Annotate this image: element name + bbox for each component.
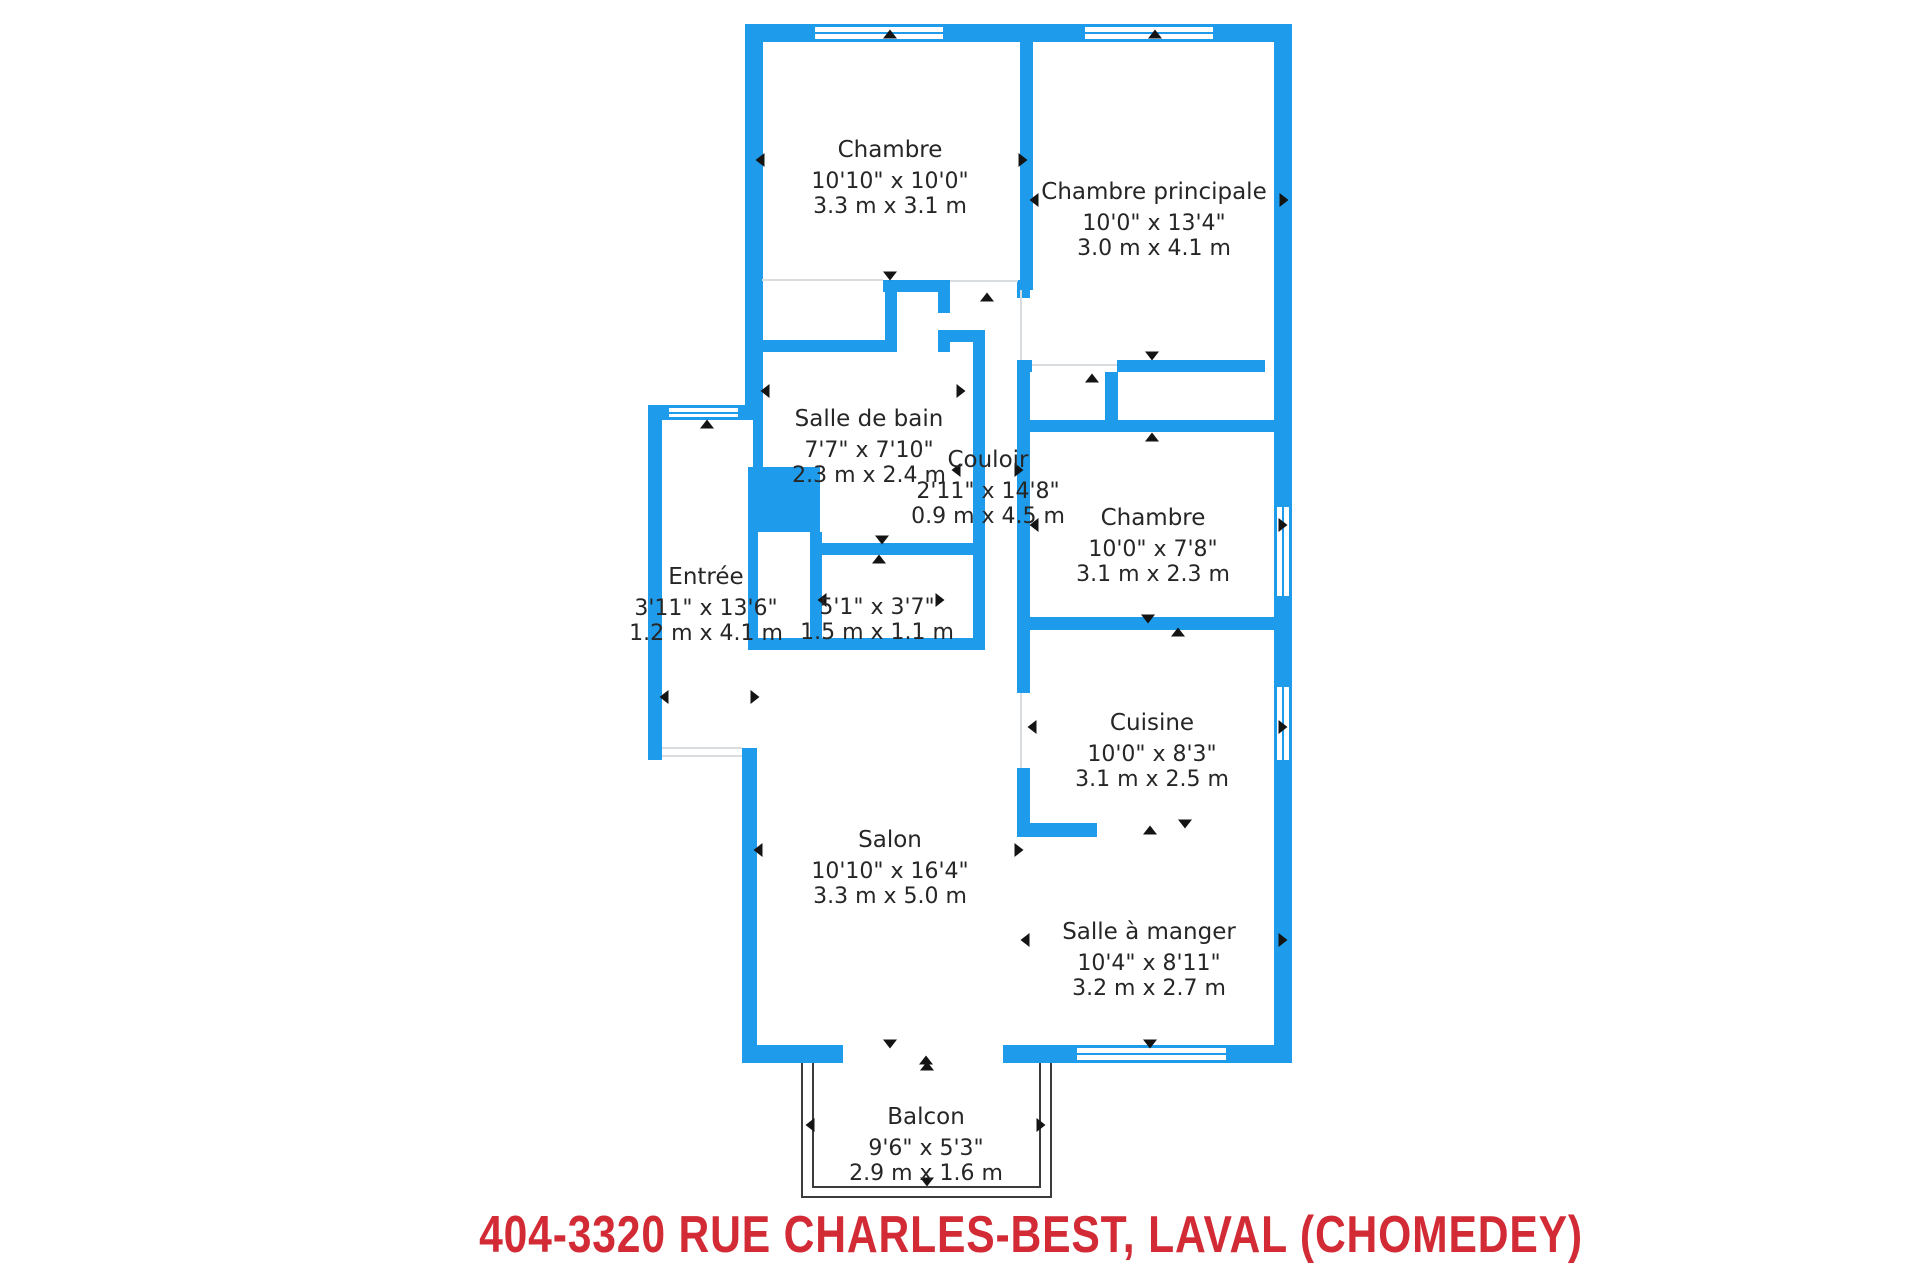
room-name: Chambre principale xyxy=(1041,179,1266,206)
arrow-marker-icon xyxy=(1085,374,1099,383)
room-imperial-dimensions: 9'6" x 5'3" xyxy=(849,1136,1003,1161)
window-mullion xyxy=(669,412,738,414)
arrow-marker-icon xyxy=(1030,193,1039,207)
door-opening xyxy=(950,280,1018,282)
arrow-marker-icon xyxy=(1141,615,1155,624)
door-opening xyxy=(762,279,883,281)
room-name: Cuisine xyxy=(1075,710,1229,737)
room-metric-dimensions: 3.1 m x 2.3 m xyxy=(1076,562,1230,587)
window-icon xyxy=(667,406,740,419)
arrow-marker-icon xyxy=(1171,628,1185,637)
room-label-chambre-haut: Chambre10'10" x 10'0"3.3 m x 3.1 m xyxy=(811,137,968,219)
arrow-marker-icon xyxy=(806,1118,815,1132)
wall-segment xyxy=(1017,420,1277,432)
room-label-rangement: 5'1" x 3'7"1.5 m x 1.1 m xyxy=(800,595,954,645)
arrow-marker-icon xyxy=(1028,720,1037,734)
wall-segment xyxy=(938,330,985,342)
room-metric-dimensions: 1.2 m x 4.1 m xyxy=(629,621,783,646)
room-imperial-dimensions: 10'0" x 8'3" xyxy=(1075,742,1229,767)
arrow-marker-icon xyxy=(1015,843,1024,857)
arrow-marker-icon xyxy=(1145,352,1159,361)
room-label-salle-a-manger: Salle à manger10'4" x 8'11"3.2 m x 2.7 m xyxy=(1062,919,1236,1001)
room-metric-dimensions: 1.5 m x 1.1 m xyxy=(800,620,954,645)
room-metric-dimensions: 3.0 m x 4.1 m xyxy=(1041,236,1266,261)
arrow-marker-icon xyxy=(883,30,897,39)
arrow-marker-icon xyxy=(1143,826,1157,835)
room-label-balcon: Balcon9'6" x 5'3"2.9 m x 1.6 m xyxy=(849,1104,1003,1186)
arrow-marker-icon xyxy=(1019,153,1028,167)
wall-segment xyxy=(1117,360,1265,372)
wall-segment xyxy=(742,748,757,1063)
floor-plan: Chambre10'10" x 10'0"3.3 m x 3.1 mChambr… xyxy=(0,0,1920,1280)
room-name: Salle de bain xyxy=(792,406,946,433)
arrow-marker-icon xyxy=(872,555,886,564)
room-imperial-dimensions: 10'0" x 13'4" xyxy=(1041,211,1266,236)
room-name: Balcon xyxy=(849,1104,1003,1131)
room-metric-dimensions: 2.9 m x 1.6 m xyxy=(849,1161,1003,1186)
arrow-marker-icon xyxy=(1279,933,1288,947)
room-label-chambre-principale: Chambre principale10'0" x 13'4"3.0 m x 4… xyxy=(1041,179,1266,261)
room-metric-dimensions: 3.3 m x 5.0 m xyxy=(811,884,968,909)
room-imperial-dimensions: 10'10" x 10'0" xyxy=(811,169,968,194)
arrow-marker-icon xyxy=(1178,820,1192,829)
door-opening xyxy=(1020,693,1022,768)
room-name: Salon xyxy=(811,827,968,854)
room-name: Entrée xyxy=(629,564,783,591)
room-metric-dimensions: 3.1 m x 2.5 m xyxy=(1075,767,1229,792)
door-opening xyxy=(662,747,742,749)
room-imperial-dimensions: 3'11" x 13'6" xyxy=(629,596,783,621)
arrow-marker-icon xyxy=(957,384,966,398)
room-imperial-dimensions: 5'1" x 3'7" xyxy=(800,595,954,620)
room-name: Salle à manger xyxy=(1062,919,1236,946)
arrow-marker-icon xyxy=(756,153,765,167)
arrow-marker-icon xyxy=(1148,30,1162,39)
room-label-salon: Salon10'10" x 16'4"3.3 m x 5.0 m xyxy=(811,827,968,909)
wall-segment xyxy=(745,340,897,352)
arrow-marker-icon xyxy=(751,690,760,704)
wall-segment xyxy=(1017,360,1032,372)
arrow-marker-icon xyxy=(1279,518,1288,532)
room-metric-dimensions: 3.3 m x 3.1 m xyxy=(811,194,968,219)
room-imperial-dimensions: 2'11" x 14'8" xyxy=(911,479,1065,504)
door-opening xyxy=(1020,290,1022,360)
arrow-marker-icon xyxy=(980,293,994,302)
room-label-couloir: Couloir2'11" x 14'8"0.9 m x 4.5 m xyxy=(911,447,1065,529)
room-name: Chambre xyxy=(1076,505,1230,532)
wall-segment xyxy=(742,1045,843,1063)
arrow-marker-icon xyxy=(1280,193,1289,207)
room-label-entree: Entrée3'11" x 13'6"1.2 m x 4.1 m xyxy=(629,564,783,646)
arrow-marker-icon xyxy=(1145,433,1159,442)
arrow-marker-icon xyxy=(883,272,897,281)
arrow-marker-icon xyxy=(1021,933,1030,947)
window-icon xyxy=(813,25,945,41)
door-opening xyxy=(662,755,742,757)
arrow-marker-icon xyxy=(1037,1118,1046,1132)
arrow-marker-icon xyxy=(919,1056,933,1065)
window-mullion xyxy=(1077,1053,1226,1055)
room-metric-dimensions: 3.2 m x 2.7 m xyxy=(1062,976,1236,1001)
window-mullion xyxy=(815,32,943,34)
room-name: Couloir xyxy=(911,447,1065,474)
wall-segment xyxy=(753,352,763,467)
arrow-marker-icon xyxy=(700,420,714,429)
arrow-marker-icon xyxy=(761,384,770,398)
wall-segment xyxy=(1017,280,1030,298)
address-title: 404-3320 RUE CHARLES-BEST, LAVAL (CHOMED… xyxy=(479,1206,1583,1264)
room-label-chambre-milieu: Chambre10'0" x 7'8"3.1 m x 2.3 m xyxy=(1076,505,1230,587)
room-name: Chambre xyxy=(811,137,968,164)
arrow-marker-icon xyxy=(1143,1040,1157,1049)
wall-segment xyxy=(938,280,950,313)
wall-segment xyxy=(1017,823,1097,837)
room-label-cuisine: Cuisine10'0" x 8'3"3.1 m x 2.5 m xyxy=(1075,710,1229,792)
arrow-marker-icon xyxy=(754,843,763,857)
arrow-marker-icon xyxy=(660,690,669,704)
arrow-marker-icon xyxy=(875,536,889,545)
room-imperial-dimensions: 10'4" x 8'11" xyxy=(1062,951,1236,976)
door-opening xyxy=(1032,364,1117,366)
arrow-marker-icon xyxy=(883,1040,897,1049)
arrow-marker-icon xyxy=(1279,720,1288,734)
room-imperial-dimensions: 10'0" x 7'8" xyxy=(1076,537,1230,562)
room-imperial-dimensions: 10'10" x 16'4" xyxy=(811,859,968,884)
room-metric-dimensions: 0.9 m x 4.5 m xyxy=(911,504,1065,529)
wall-segment xyxy=(810,543,985,555)
